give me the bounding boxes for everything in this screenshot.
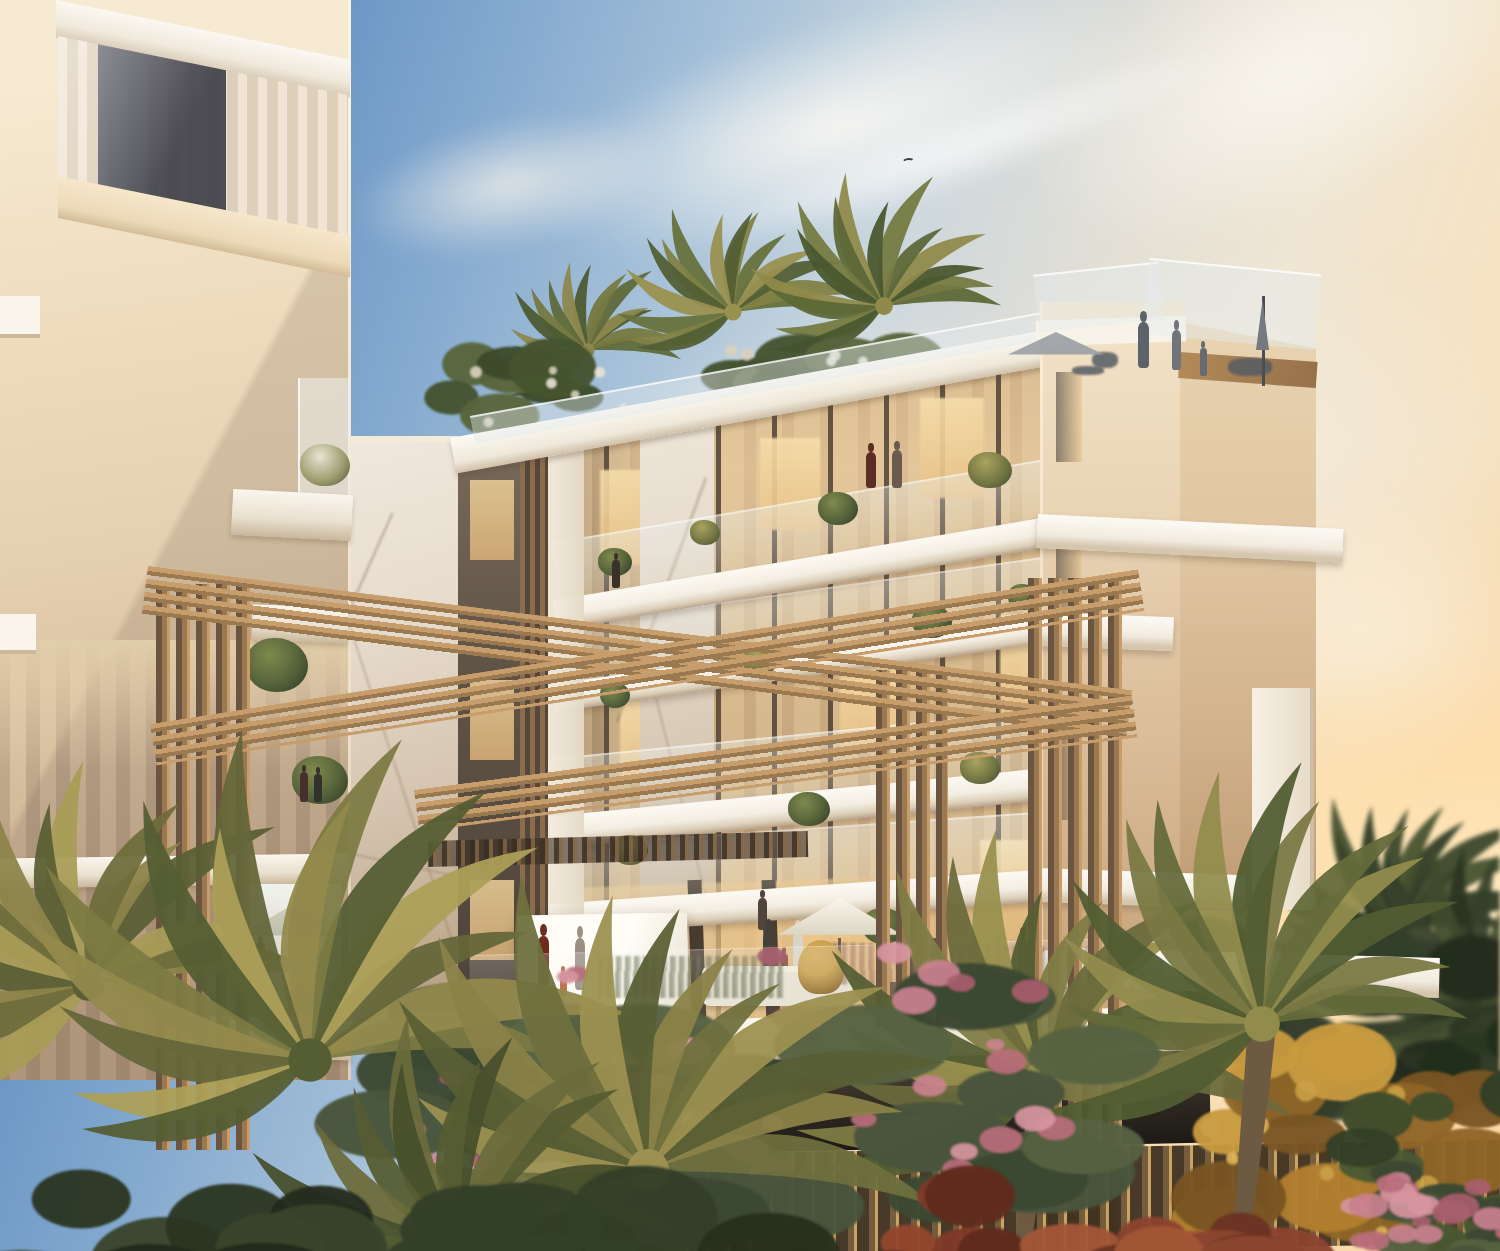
pink-bloom <box>1012 980 1049 1003</box>
architectural-render-scene <box>0 0 1500 1251</box>
foliage-blob <box>925 1165 1015 1226</box>
pink-bloom <box>1015 1106 1056 1131</box>
pink-bloom <box>1432 1201 1470 1225</box>
pink-bloom <box>1465 1179 1491 1195</box>
pink-bloom <box>1413 1225 1443 1244</box>
pink-bloom <box>986 1039 1005 1051</box>
foliage-blob <box>1409 1092 1454 1121</box>
pink-bloom <box>877 942 912 964</box>
palm-crown-center <box>288 1038 331 1081</box>
flower-dot <box>1320 1166 1335 1181</box>
foreground-vegetation <box>0 0 1500 1251</box>
pink-bloom <box>1389 1192 1432 1219</box>
foliage-blob <box>32 1170 131 1229</box>
foliage-blob <box>881 1225 936 1251</box>
flower-dot <box>1227 1152 1240 1165</box>
pink-bloom <box>980 1126 1023 1152</box>
foliage-blob <box>1326 1128 1400 1167</box>
pink-bloom <box>947 974 975 991</box>
flower-dot <box>1200 1117 1220 1137</box>
pink-bloom <box>1349 1193 1389 1218</box>
pink-bloom <box>986 1049 1026 1074</box>
pink-bloom <box>951 1143 978 1160</box>
pink-bloom <box>556 970 578 984</box>
palm-crown-center <box>1244 1006 1280 1042</box>
flower-dot <box>1295 1080 1316 1101</box>
pink-bloom <box>892 987 936 1014</box>
pink-bloom <box>1358 1231 1390 1251</box>
pink-bloom <box>1376 1175 1405 1193</box>
pink-bloom <box>913 1075 947 1096</box>
shrub-cluster <box>0 1170 398 1251</box>
pink-bloom <box>757 947 786 965</box>
